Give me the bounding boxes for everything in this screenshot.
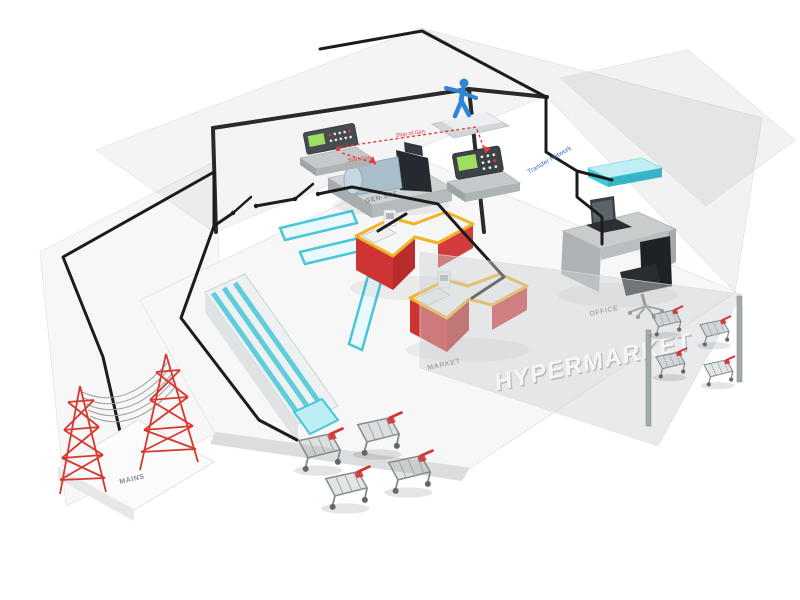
- person-head: [460, 79, 469, 88]
- post-2: [737, 296, 742, 382]
- scene-canvas: GEN-SET: [0, 0, 800, 600]
- shopping-cart: [701, 356, 735, 389]
- hypermarket-power-diagram: GEN-SET: [0, 0, 800, 600]
- transfer-network-label: Transfer Network: [527, 144, 574, 175]
- controller-right: [447, 146, 520, 202]
- post-1: [646, 330, 651, 426]
